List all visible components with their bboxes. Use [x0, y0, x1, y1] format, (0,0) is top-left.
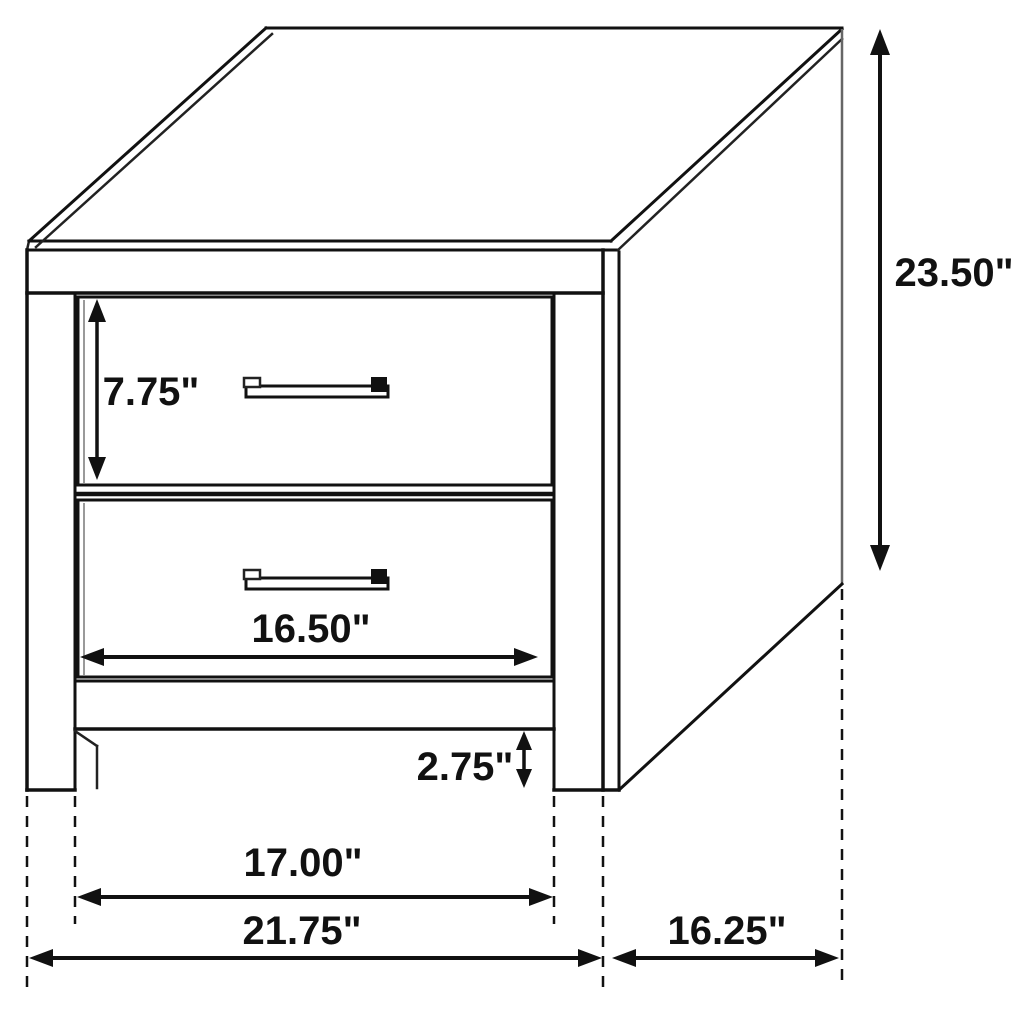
handle-bar [246, 386, 388, 397]
legs [27, 731, 619, 790]
diagram-svg: 23.50" 7.75" 16.50" 2.75" 17 [0, 0, 1024, 1024]
dim-leg-height-arrowhead-down [516, 769, 532, 788]
top-surface [27, 28, 842, 250]
dim-overall-width-label: 21.75" [242, 909, 361, 953]
dim-overall-width: 21.75" [29, 909, 602, 967]
dim-depth: 16.25" [612, 909, 839, 967]
handle-right-post [371, 569, 387, 584]
dim-leg-height-label: 2.75" [417, 745, 514, 789]
handle-left-post [244, 378, 260, 387]
top-left-diagonal-outer [29, 28, 266, 241]
top-right-diagonal-outer [611, 29, 842, 241]
side-panel-bottom-edge [619, 584, 842, 790]
top-right-diagonal-inner [618, 39, 842, 250]
dim-depth-arrowhead-left [612, 949, 636, 967]
dim-depth-arrowhead-right [815, 949, 839, 967]
dim-leg-spacing-arrowhead-right [529, 888, 553, 906]
dim-drawer-height-label: 7.75" [103, 370, 200, 414]
dim-drawer-width-label: 16.50" [251, 607, 370, 651]
dim-height-arrowhead-down [870, 545, 890, 571]
handle-left-post [244, 570, 260, 579]
left-leg-side-diagonal [75, 731, 97, 746]
dim-leg-height-arrowhead-up [516, 731, 532, 750]
dim-height-label: 23.50" [894, 251, 1013, 295]
dim-height-arrowhead-up [870, 29, 890, 55]
nightstand-dimension-diagram: 23.50" 7.75" 16.50" 2.75" 17 [0, 0, 1024, 1024]
handle-right-post [371, 377, 387, 392]
top-left-diagonal-inner [36, 34, 272, 247]
dim-leg-spacing-arrowhead-left [77, 888, 101, 906]
handle-bar [246, 578, 388, 589]
dim-leg-spacing-label: 17.00" [243, 841, 362, 885]
dim-overall-width-arrowhead-right [578, 949, 602, 967]
dim-depth-label: 16.25" [667, 909, 786, 953]
dim-leg-height: 2.75" [417, 731, 532, 789]
dim-overall-width-arrowhead-left [29, 949, 53, 967]
dim-height: 23.50" [870, 29, 1014, 571]
dim-leg-spacing: 17.00" [77, 841, 553, 906]
